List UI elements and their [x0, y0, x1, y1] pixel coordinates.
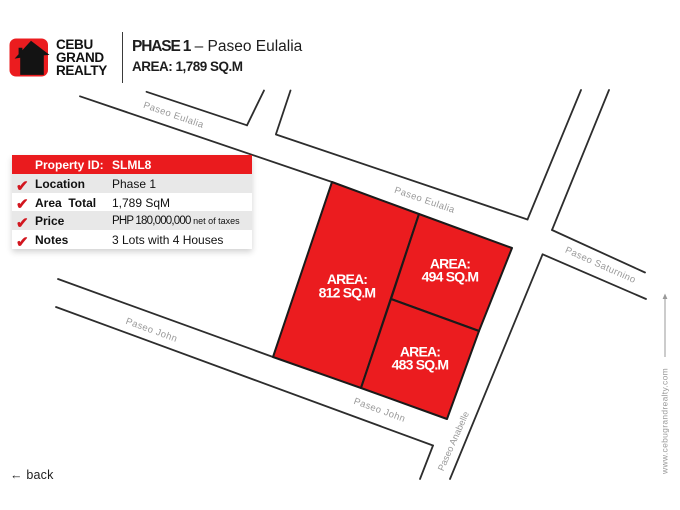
svg-text:Paseo Eulalia: Paseo Eulalia: [142, 100, 206, 131]
svg-text:494 SQ.M: 494 SQ.M: [422, 269, 479, 285]
svg-text:www.cebugrandrealty.com: www.cebugrandrealty.com: [659, 368, 669, 475]
svg-text:812 SQ.M: 812 SQ.M: [319, 285, 376, 301]
svg-text:483 SQ.M: 483 SQ.M: [392, 357, 449, 373]
